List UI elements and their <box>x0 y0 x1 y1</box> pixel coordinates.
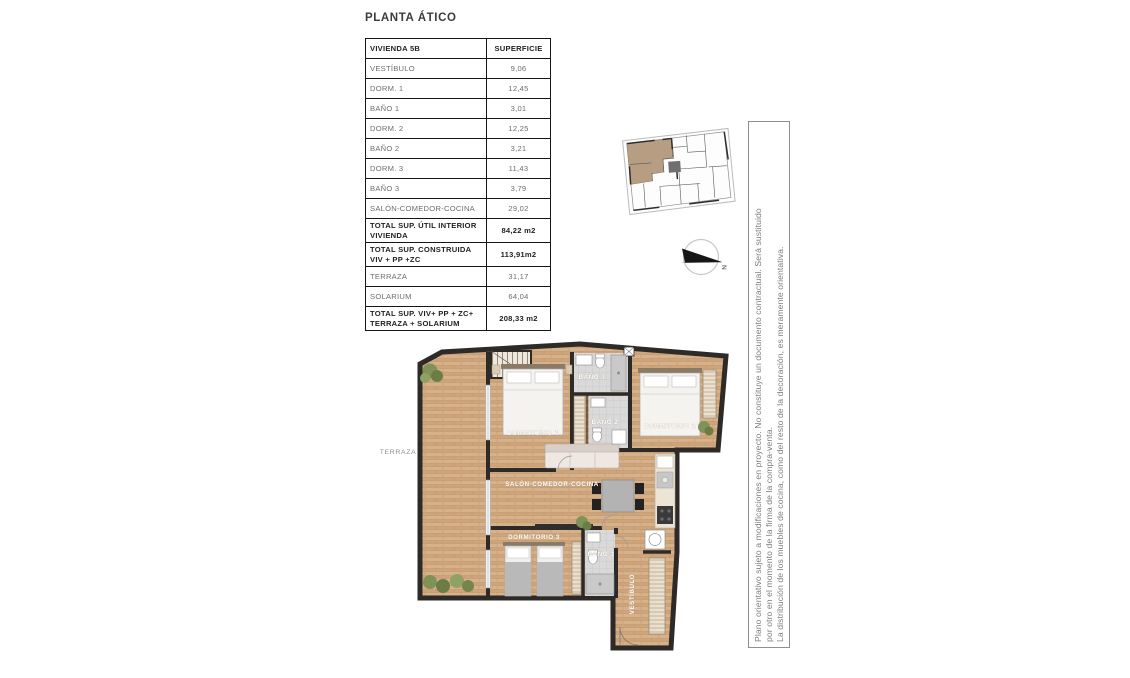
room-name-cell: SALÓN-COMEDOR-COCINA <box>366 199 487 219</box>
shaft <box>624 347 634 356</box>
dorm3-label: DORMITORIO 3 <box>508 534 560 541</box>
hall-closet <box>574 396 585 448</box>
disclaimer-line-1: Plano orientativo sujeto a modificacione… <box>753 127 764 642</box>
terrace-windows <box>486 385 491 588</box>
table-row: BAÑO 13,01 <box>366 99 551 119</box>
surface-value-cell: 9,06 <box>487 59 551 79</box>
table-header-surface: SUPERFICIE <box>487 39 551 59</box>
surface-value-cell: 84,22 m2 <box>487 219 551 243</box>
bano1-label: BAÑO 1 <box>579 374 606 381</box>
bed-dorm1 <box>492 364 572 435</box>
compass: N <box>676 234 732 284</box>
table-header-dwelling: VIVIENDA 5B <box>366 39 487 59</box>
surface-value-cell: 3,01 <box>487 99 551 119</box>
dorm2-label: DORMITORIO 2 <box>644 423 696 430</box>
surface-table: VIVIENDA 5B SUPERFICIE VESTÍBULO9,06DORM… <box>365 38 551 331</box>
surface-value-cell: 208,33 m2 <box>487 307 551 331</box>
table-row: TERRAZA31,17 <box>366 267 551 287</box>
surface-value-cell: 3,21 <box>487 139 551 159</box>
terrace-label: TERRAZA <box>380 449 417 456</box>
surface-value-cell: 12,45 <box>487 79 551 99</box>
salon-label: SALÓN-COMEDOR-COCINA <box>505 480 599 488</box>
room-name-cell: DORM. 2 <box>366 119 487 139</box>
table-row: TOTAL SUP. ÚTIL INTERIOR VIVIENDA84,22 m… <box>366 219 551 243</box>
bano3-label: BAÑO 3 <box>588 551 615 558</box>
keyplan-core <box>668 161 681 173</box>
surface-value-cell: 3,79 <box>487 179 551 199</box>
vestibulo-label: VESTÍBULO <box>628 574 636 614</box>
room-name-cell: VESTÍBULO <box>366 59 487 79</box>
room-name-cell: DORM. 3 <box>366 159 487 179</box>
washing-machine <box>645 530 665 549</box>
table-row: SOLARIUM64,04 <box>366 287 551 307</box>
bano2-label: BAÑO 2 <box>592 419 619 426</box>
surface-value-cell: 12,25 <box>487 119 551 139</box>
wardrobe-dorm2 <box>703 370 716 418</box>
table-header-row: VIVIENDA 5B SUPERFICIE <box>366 39 551 59</box>
dorm1-label: DORMITORIO 1 <box>507 430 559 437</box>
kitchen-counter <box>655 454 675 528</box>
surface-value-cell: 11,43 <box>487 159 551 179</box>
table-row: SALÓN-COMEDOR-COCINA29,02 <box>366 199 551 219</box>
sofa <box>545 444 619 468</box>
wardrobe-dorm3 <box>572 542 581 594</box>
room-name-cell: BAÑO 2 <box>366 139 487 159</box>
floor-plan: TERRAZA DORMITORIO 1 BAÑO 1 BAÑO 2 DORMI… <box>340 330 740 675</box>
surface-value-cell: 29,02 <box>487 199 551 219</box>
room-name-cell: TOTAL SUP. VIV+ PP + ZC+ TERRAZA + SOLAR… <box>366 307 487 331</box>
compass-north-label: N <box>720 265 727 270</box>
room-name-cell: DORM. 1 <box>366 79 487 99</box>
table-row: DORM. 212,25 <box>366 119 551 139</box>
plan-sheet: PLANTA ÁTICO VIVIENDA 5B SUPERFICIE VEST… <box>0 0 1130 678</box>
room-name-cell: TOTAL SUP. ÚTIL INTERIOR VIVIENDA <box>366 219 487 243</box>
table-row: DORM. 311,43 <box>366 159 551 179</box>
table-row: TOTAL SUP. VIV+ PP + ZC+ TERRAZA + SOLAR… <box>366 307 551 331</box>
table-row: BAÑO 33,79 <box>366 179 551 199</box>
table-row: DORM. 112,45 <box>366 79 551 99</box>
surface-value-cell: 31,17 <box>487 267 551 287</box>
table-row: TOTAL SUP. CONSTRUIDA VIV + PP +ZC113,91… <box>366 243 551 267</box>
room-name-cell: SOLARIUM <box>366 287 487 307</box>
key-location-plan <box>617 123 741 225</box>
disclaimer-line-2: por otro en el momento de la firma de la… <box>764 127 775 642</box>
compass-needle <box>682 249 722 263</box>
room-name-cell: BAÑO 1 <box>366 99 487 119</box>
disclaimer-text: Plano orientativo sujeto a modificacione… <box>750 122 790 647</box>
wardrobe-hall <box>649 558 665 634</box>
surface-value-cell: 113,91m2 <box>487 243 551 267</box>
surface-value-cell: 64,04 <box>487 287 551 307</box>
page-title: PLANTA ÁTICO <box>365 12 457 24</box>
room-name-cell: BAÑO 3 <box>366 179 487 199</box>
disclaimer-box: Plano orientativo sujeto a modificacione… <box>748 121 790 648</box>
table-row: VESTÍBULO9,06 <box>366 59 551 79</box>
room-name-cell: TERRAZA <box>366 267 487 287</box>
surface-table-body: VIVIENDA 5B SUPERFICIE VESTÍBULO9,06DORM… <box>366 39 551 331</box>
disclaimer-line-3: La distribución de los muebles de cocina… <box>775 127 786 642</box>
table-row: BAÑO 23,21 <box>366 139 551 159</box>
room-name-cell: TOTAL SUP. CONSTRUIDA VIV + PP +ZC <box>366 243 487 267</box>
